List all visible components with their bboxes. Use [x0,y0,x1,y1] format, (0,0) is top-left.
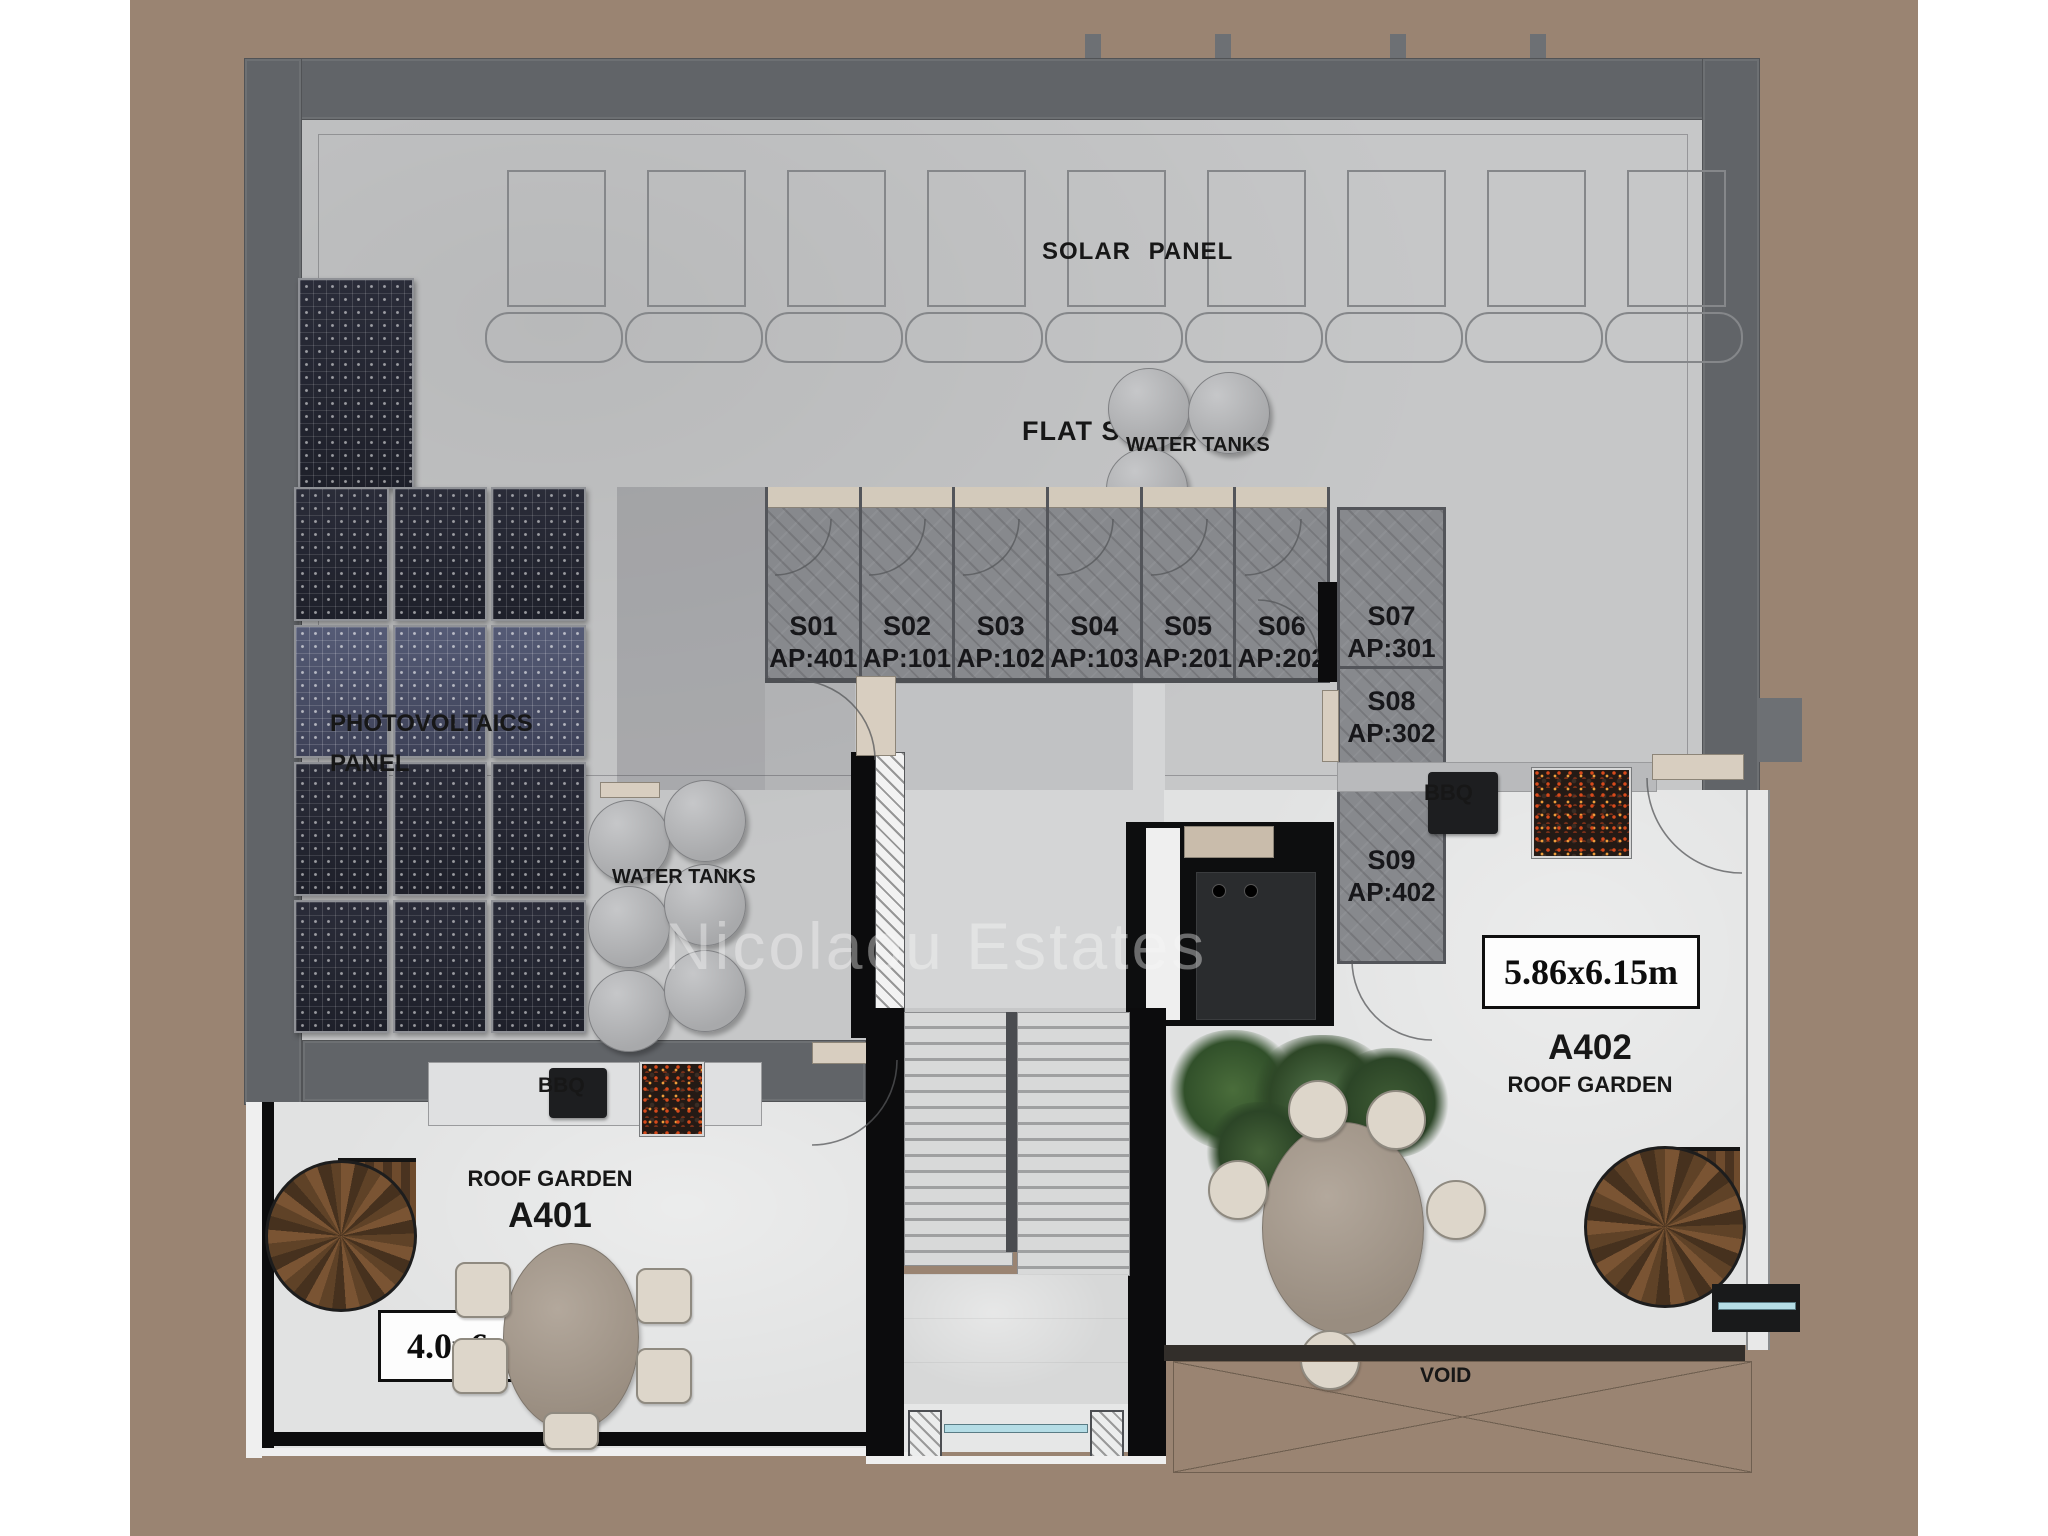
storage-apartment: AP:301 [1347,635,1435,662]
wall-segment [1318,582,1337,682]
chair [452,1338,508,1394]
stair-flight [1017,1012,1130,1276]
cooktop-knob [1244,884,1258,898]
bbq-left-label: BBQ [538,1074,585,1098]
garden-a402-right-wall [1746,790,1770,1350]
storage-code: S09 [1367,846,1415,874]
storage-apartment: AP:401 [769,645,857,672]
storage-code: S02 [883,612,931,640]
spiral-staircase [265,1160,417,1312]
core-wall-hatched [875,752,905,1040]
storage-room-row: S01 AP:401 S02 AP:101 S03 AP:102 S04 AP:… [765,487,1330,683]
garden-a402-label: ROOF GARDEN [1490,1072,1690,1098]
plot-edge [866,1456,1166,1464]
photovoltaic-panel [491,762,586,896]
water-tanks-right-label: WATER TANKS [1126,434,1270,457]
storage-apartment: AP:202 [1238,645,1326,672]
storage-room: S08 AP:302 [1337,666,1446,768]
water-tank [664,780,746,862]
storage-code: S03 [977,612,1025,640]
wall-protrusion [1758,698,1802,762]
solar-panel-label: SOLAR PANEL [1042,238,1233,266]
solar-collector-outline [1325,312,1463,363]
corridor-door [856,676,896,756]
photovoltaic-panel [491,900,586,1034]
photovoltaic-panel [393,487,488,621]
solar-panel-slot [647,170,746,307]
storage-code: S04 [1070,612,1118,640]
storage-room: S07 AP:301 [1337,507,1446,671]
void-label: VOID [1420,1364,1471,1388]
chair [455,1262,511,1318]
garden-a402-dimensions: 5.86x6.15m [1482,935,1700,1009]
solar-collector-outline [1185,312,1323,363]
plot-edge [246,1102,262,1458]
column-section [1090,1410,1124,1458]
storage-room: S04 AP:103 [1046,487,1140,678]
storage-room: S03 AP:102 [952,487,1046,678]
glass-door [944,1424,1088,1433]
solar-panel-slot [1627,170,1726,307]
cast-shadow [617,487,765,790]
bbq-right-label: BBQ [1424,780,1473,806]
storage-apartment: AP:201 [1144,645,1232,672]
chair [1366,1090,1426,1150]
garden-a401-title: ROOF GARDEN A401 [455,1166,645,1236]
stair-wall-stub [866,1404,904,1456]
storage-code: S06 [1258,612,1306,640]
window-glass [1718,1302,1796,1310]
water-tanks-left-label: WATER TANKS [612,866,756,889]
solar-panel-slot [507,170,606,307]
solar-collector-outline [485,312,623,363]
parapet-wall-top [244,58,1760,120]
cooktop-knob [1212,884,1226,898]
chair [1426,1180,1486,1240]
solar-collector-outline [625,312,763,363]
water-tank [588,886,670,968]
parapet-wall-right [1702,58,1760,798]
photovoltaic-panel [294,900,389,1034]
storage-door [1322,690,1339,762]
stair-divider [1006,1012,1017,1252]
storage-apartment: AP:101 [863,645,951,672]
storage-room: S02 AP:101 [859,487,953,678]
dining-table [1262,1122,1424,1334]
solar-collector-outline [1465,312,1603,363]
stair-wall-stub [1128,1404,1166,1456]
storage-room: S06 AP:202 [1233,487,1330,678]
photovoltaic-panel [393,900,488,1034]
storage-code: S07 [1367,602,1415,630]
storage-code: S08 [1367,687,1415,715]
solar-panel-slot [927,170,1026,307]
solar-collector-outline [1605,312,1743,363]
stair-flight [904,1012,1013,1266]
storage-code: S01 [789,612,837,640]
stair-wall-left [866,1008,904,1404]
corridor-west-door [600,782,660,798]
storage-room: S05 AP:201 [1140,487,1234,678]
watermark: Nicolaou Estates [664,908,1207,984]
garden-a402-title: A402 ROOF GARDEN [1490,1028,1690,1098]
garden-a401-code: A401 [455,1196,645,1236]
solar-collector-outline [765,312,903,363]
garden-a402-door [1652,754,1744,780]
photovoltaic-panel [298,278,414,489]
chair [543,1412,599,1450]
garden-a401-left-wall [262,1102,274,1450]
photovoltaics-label: PHOTOVOLTAICS PANEL [330,710,533,778]
charcoal-grill [1532,768,1631,858]
garden-a401-label: ROOF GARDEN [455,1166,645,1192]
garden-a402-bottom-wall [1164,1345,1745,1361]
solar-panel-slot [1487,170,1586,307]
storage-apartment: AP:103 [1050,645,1138,672]
solar-panel-slot [1347,170,1446,307]
photovoltaic-panel [393,762,488,896]
chair [1288,1080,1348,1140]
photovoltaic-panel [294,762,389,896]
storage-room: S01 AP:401 [765,487,859,678]
kitchen-sink [1184,826,1274,858]
roof-floor-plan: SOLAR PANEL FLAT SLAB PHOTOVOLTAICS PANE… [0,0,2048,1536]
core-wall [851,752,875,1038]
charcoal-grill [640,1062,704,1136]
storage-apartment: AP:302 [1347,720,1435,747]
column-section [908,1410,942,1458]
storage-code: S05 [1164,612,1212,640]
storage-apartment: AP:102 [957,645,1045,672]
photovoltaic-panel [294,487,389,621]
stair-landing [904,1274,1128,1404]
stair-wall-right [1128,1008,1166,1404]
solar-collector-outline [905,312,1043,363]
chair [636,1268,692,1324]
chair [1208,1160,1268,1220]
dining-table [503,1243,639,1431]
garden-a402-code: A402 [1490,1028,1690,1068]
cast-shadow [765,678,1133,790]
photovoltaic-panel [491,487,586,621]
water-tank [588,970,670,1052]
storage-apartment: AP:402 [1347,879,1435,906]
solar-collector-outline [1045,312,1183,363]
chair [636,1348,692,1404]
solar-panel-slot [787,170,886,307]
